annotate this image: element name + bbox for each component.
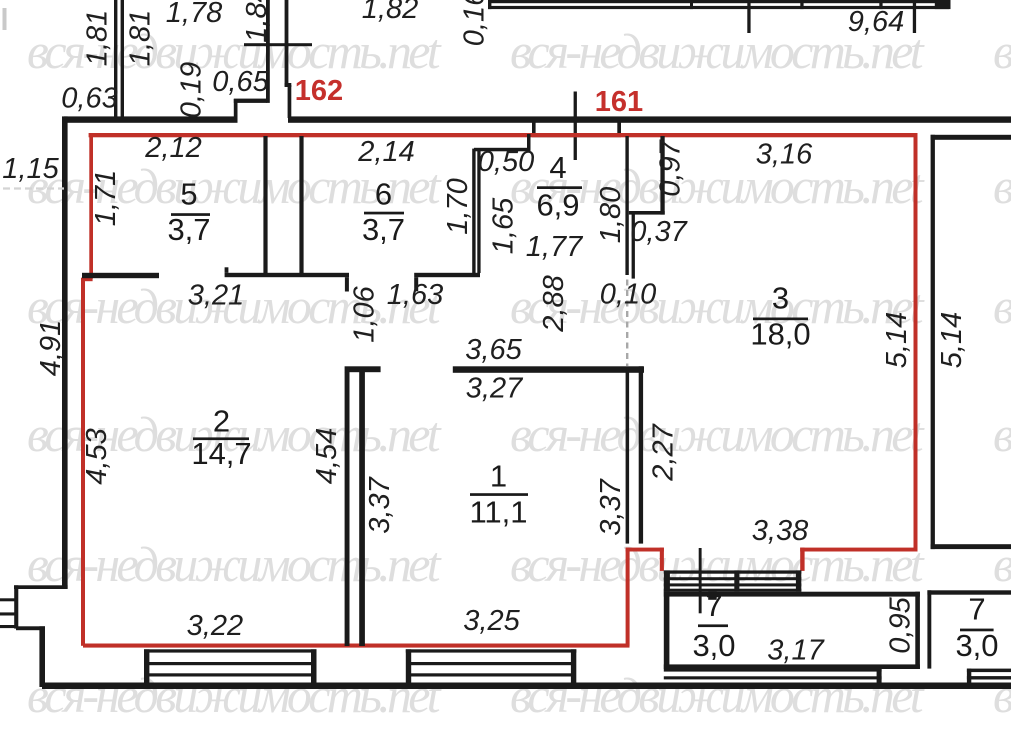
svg-text:9,64: 9,64 [848,6,904,38]
svg-text:2,88: 2,88 [538,275,570,332]
svg-text:5,14: 5,14 [881,312,913,368]
svg-text:вся-недвижимость.net: вся-недвижимость.net [993,667,1011,723]
svg-text:3,7: 3,7 [167,212,210,247]
svg-text:6: 6 [375,177,392,212]
svg-text:3,16: 3,16 [756,139,813,171]
svg-text:0,95: 0,95 [885,596,917,653]
svg-text:вся-недвижимость.net: вся-недвижимость.net [27,536,442,592]
svg-text:3,22: 3,22 [187,610,243,642]
svg-text:11,1: 11,1 [469,495,527,530]
svg-text:3,0: 3,0 [955,628,998,663]
svg-text:14,7: 14,7 [191,436,251,471]
svg-text:3: 3 [772,281,789,316]
svg-text:0,63: 0,63 [61,83,117,115]
svg-text:3,38: 3,38 [752,515,808,547]
svg-text:1,82: 1,82 [362,0,418,25]
svg-text:1: 1 [490,459,507,494]
svg-text:1,06: 1,06 [349,285,381,342]
svg-text:3,37: 3,37 [364,475,396,533]
svg-text:2,27: 2,27 [648,422,680,481]
svg-text:вся-недвижимость.net: вся-недвижимость.net [993,278,1011,334]
svg-text:2,14: 2,14 [357,136,414,168]
svg-text:7: 7 [968,592,985,627]
svg-text:0,65: 0,65 [212,66,269,98]
svg-text:1,70: 1,70 [442,178,474,234]
svg-text:0,50: 0,50 [478,146,534,178]
svg-text:7: 7 [705,588,722,623]
svg-text:вся-недвижимость.net: вся-недвижимость.net [993,406,1011,462]
svg-text:1,81: 1,81 [82,10,114,66]
svg-text:162: 162 [295,75,343,107]
svg-text:вся-недвижимость.net: вся-недвижимость.net [510,278,925,334]
svg-text:1,63: 1,63 [387,279,443,311]
svg-text:0,19: 0,19 [176,62,208,118]
svg-text:1,78: 1,78 [166,0,222,29]
svg-text:6,9: 6,9 [536,188,579,223]
svg-text:вся-недвижимость.net: вся-недвижимость.net [993,23,1011,79]
svg-text:0,37: 0,37 [630,216,688,248]
svg-text:0,16: 0,16 [459,0,491,46]
svg-text:1,71: 1,71 [90,170,122,226]
svg-text:5,14: 5,14 [936,312,968,368]
svg-text:4,54: 4,54 [311,428,343,484]
svg-text:0,97: 0,97 [655,138,687,196]
svg-text:2,12: 2,12 [144,132,201,164]
svg-text:1,81: 1,81 [125,10,157,66]
svg-text:1,15: 1,15 [2,153,59,185]
svg-text:3,25: 3,25 [463,605,520,637]
svg-text:1,77: 1,77 [526,231,584,263]
svg-text:3,65: 3,65 [465,334,522,366]
svg-text:3,0: 3,0 [692,628,735,663]
svg-text:1,84: 1,84 [241,0,273,43]
svg-text:вся-недвижимость.net: вся-недвижимость.net [510,406,925,462]
svg-text:5: 5 [180,177,197,212]
svg-text:вся-недвижимость.net: вся-недвижимость.net [993,158,1011,214]
svg-text:4: 4 [549,150,566,185]
svg-text:4,91: 4,91 [35,320,67,376]
svg-text:1,80: 1,80 [595,187,627,243]
svg-text:3,17: 3,17 [767,635,825,667]
svg-text:1,65: 1,65 [488,197,520,254]
svg-text:18,0: 18,0 [750,317,810,352]
svg-text:3,37: 3,37 [595,477,627,535]
svg-text:3,7: 3,7 [362,212,405,247]
svg-text:3,21: 3,21 [188,280,244,312]
svg-text:161: 161 [595,86,643,118]
svg-text:2: 2 [213,404,230,439]
svg-text:4,53: 4,53 [81,428,113,484]
svg-text:0,10: 0,10 [600,279,656,311]
svg-text:3,27: 3,27 [466,373,524,405]
